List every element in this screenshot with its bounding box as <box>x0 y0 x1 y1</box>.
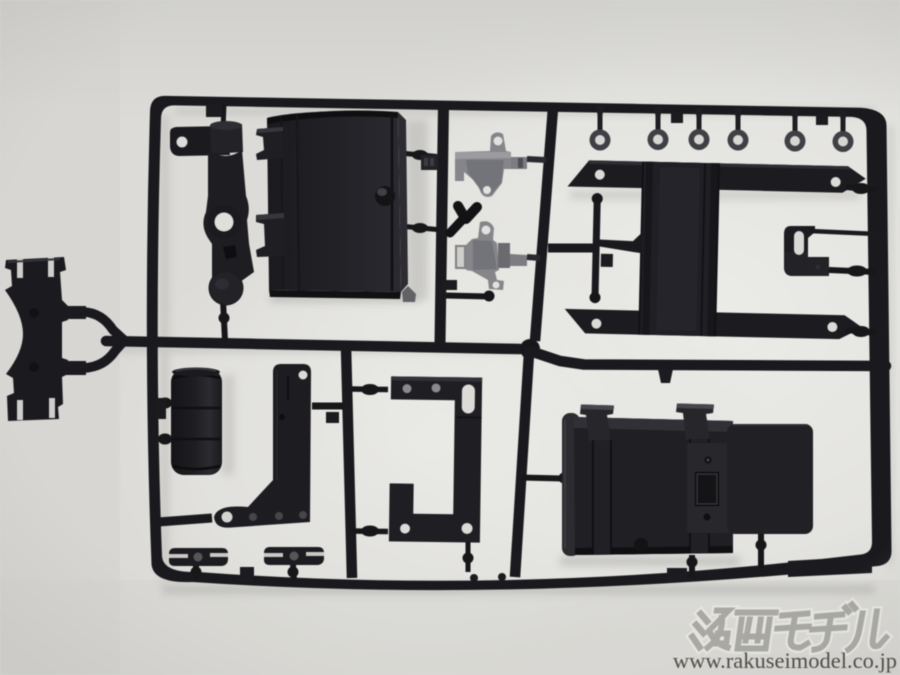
svg-text:www.rakuseimodel.co.jp: www.rakuseimodel.co.jp <box>673 648 897 673</box>
